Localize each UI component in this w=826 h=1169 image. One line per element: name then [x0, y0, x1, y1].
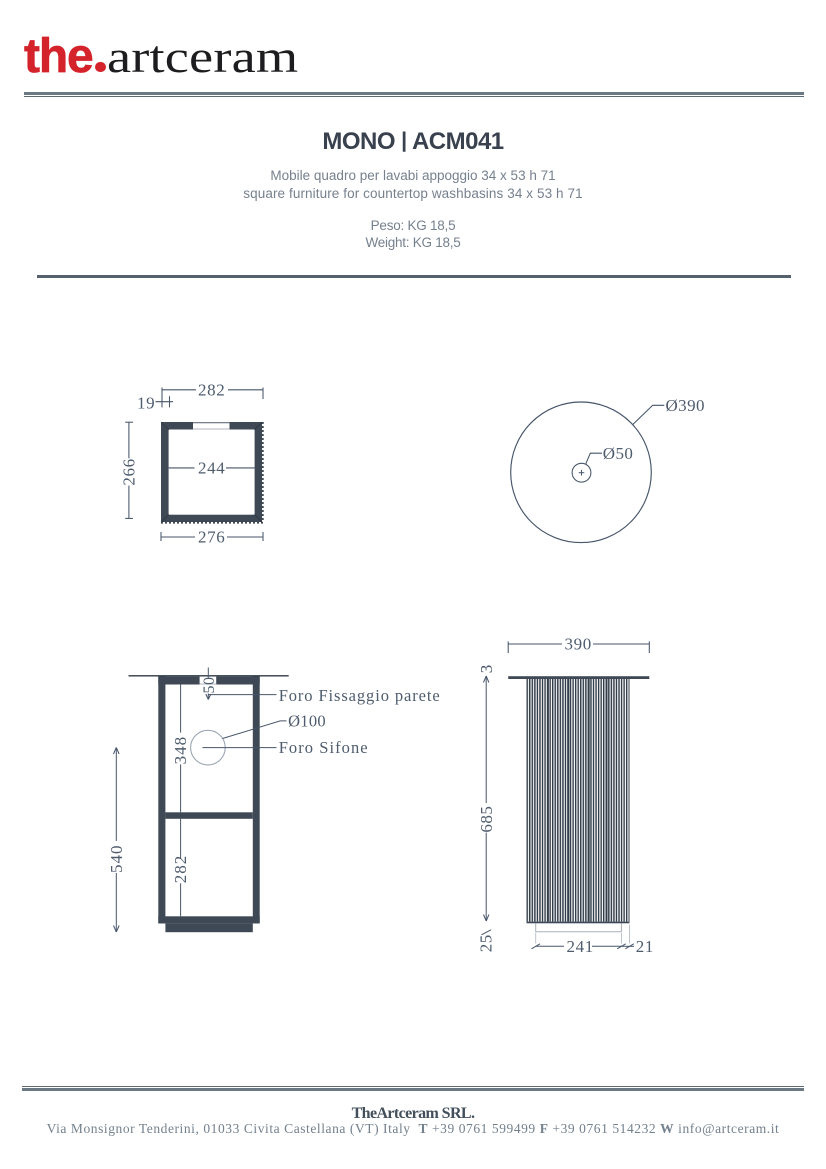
svg-text:266: 266	[120, 458, 139, 485]
svg-text:25: 25	[476, 934, 495, 952]
svg-text:348: 348	[171, 736, 190, 765]
svg-text:Foro Fissaggio parete: Foro Fissaggio parete	[279, 686, 441, 705]
svg-text:19: 19	[137, 393, 155, 412]
svg-text:21: 21	[636, 937, 654, 956]
svg-text:540: 540	[107, 845, 126, 874]
svg-text:50: 50	[201, 677, 218, 694]
svg-text:685: 685	[477, 806, 496, 833]
svg-text:Foro Sifone: Foro Sifone	[279, 738, 369, 757]
svg-text:276: 276	[198, 528, 225, 547]
svg-text:282: 282	[171, 855, 190, 884]
svg-text:Ø50: Ø50	[603, 444, 633, 463]
svg-text:Ø390: Ø390	[666, 396, 705, 415]
svg-text:241: 241	[567, 937, 594, 956]
svg-text:390: 390	[565, 635, 592, 654]
svg-text:244: 244	[198, 459, 225, 478]
svg-text:3: 3	[477, 664, 496, 673]
svg-text:Ø100: Ø100	[288, 711, 326, 730]
svg-text:282: 282	[198, 380, 225, 399]
